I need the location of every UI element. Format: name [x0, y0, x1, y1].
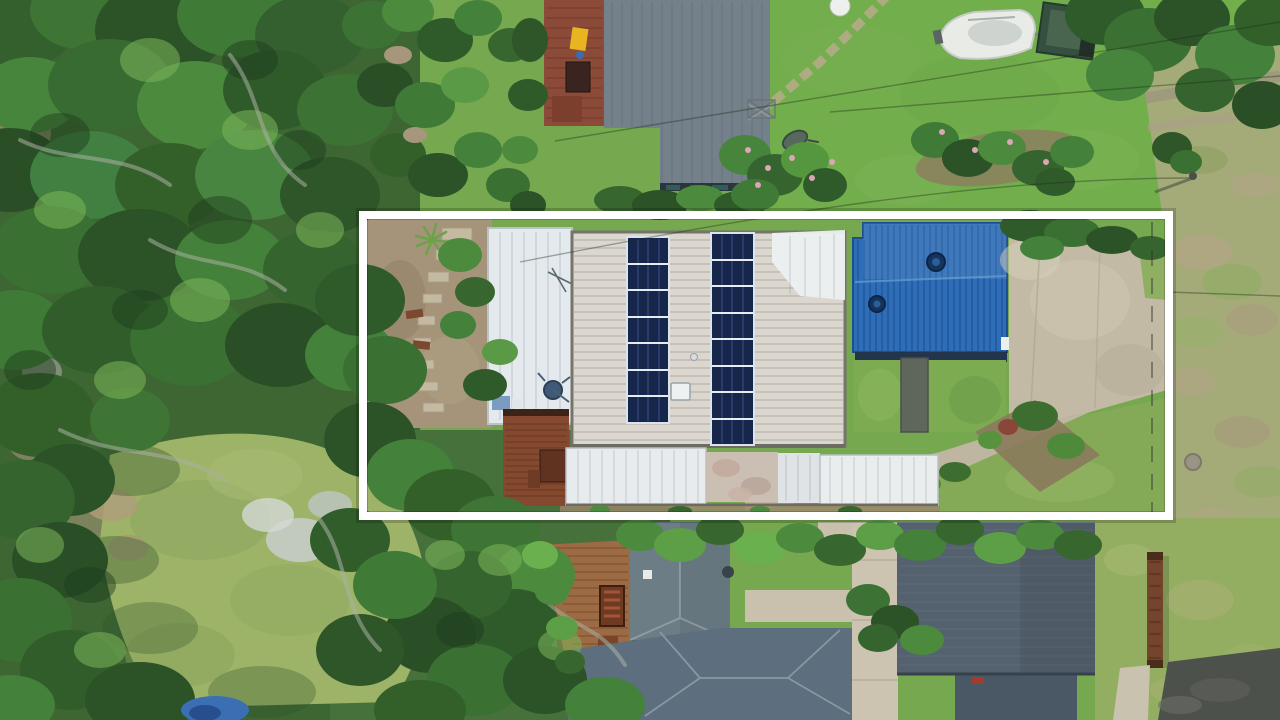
- aerial-photo-canvas: [0, 0, 1280, 720]
- solar-array-right: [711, 233, 754, 445]
- roof-vent-whirlybird: [869, 296, 885, 312]
- satellite-dish-neighbor: [830, 0, 850, 16]
- roof-vent-small: [691, 354, 698, 361]
- aerial-photo: [0, 0, 1280, 720]
- flue: [643, 570, 652, 579]
- red-shrub: [998, 419, 1018, 435]
- deck-chairs: [600, 586, 624, 626]
- red-roof-item: [972, 677, 984, 684]
- deck-furniture: [540, 450, 566, 482]
- main-house-roof: [572, 230, 845, 446]
- house-deck: [503, 409, 569, 506]
- neighbor-deck: [544, 0, 604, 126]
- blue-metal-roof: [853, 223, 1011, 362]
- dark-path: [901, 358, 928, 432]
- lower-right-yard: [1095, 518, 1280, 720]
- whirlybird-vent: [722, 566, 734, 578]
- front-lower-roofs: [560, 448, 940, 516]
- rear-yard: [854, 358, 1006, 432]
- yellow-play-item: [570, 27, 589, 51]
- solar-array-left: [627, 237, 669, 423]
- manhole-cover: [1185, 454, 1201, 470]
- skylight: [671, 383, 690, 400]
- roof-vent-whirlybird: [927, 253, 945, 271]
- deck-table: [566, 62, 590, 92]
- deck-doorway-shadow: [503, 409, 569, 416]
